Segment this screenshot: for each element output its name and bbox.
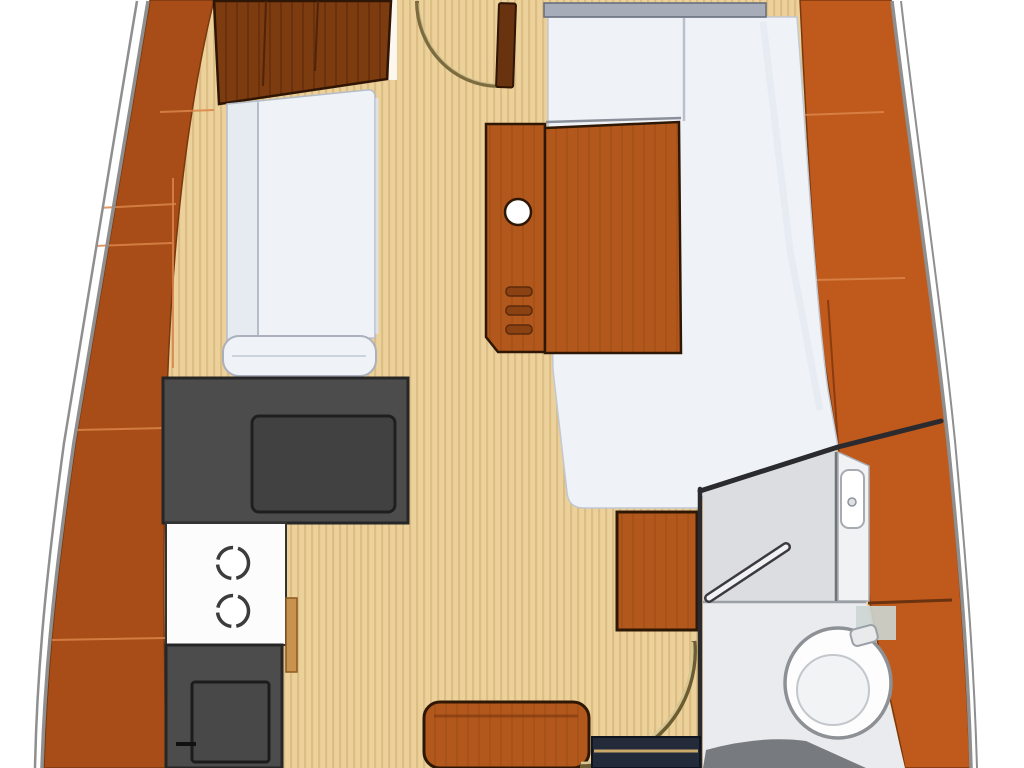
table-folding-leaf (486, 124, 545, 352)
galley-bulkhead-edge (286, 598, 297, 672)
table-cupholder (505, 199, 531, 225)
aft-cabinet-block (617, 512, 697, 630)
floorplan-svg (0, 0, 1024, 768)
nav-seat (424, 702, 589, 768)
galley-oven-front (192, 682, 269, 762)
floorplan-canvas (0, 0, 1024, 768)
port-settee (223, 90, 377, 376)
table-hinge (506, 287, 532, 296)
saloon-table (486, 122, 681, 353)
galley-sink (252, 416, 395, 512)
cabin-door (496, 3, 516, 88)
table-hinge (506, 306, 532, 315)
table-hinge (506, 325, 532, 334)
head-sink-faucet (848, 498, 856, 506)
settee-back-cushion (227, 101, 258, 343)
stove-burner (218, 596, 249, 627)
toilet-seat (797, 655, 869, 725)
berth-head-band (544, 3, 766, 17)
table-top (545, 122, 681, 353)
settee-seat-cushion (258, 90, 375, 341)
stove-burner (218, 548, 249, 579)
